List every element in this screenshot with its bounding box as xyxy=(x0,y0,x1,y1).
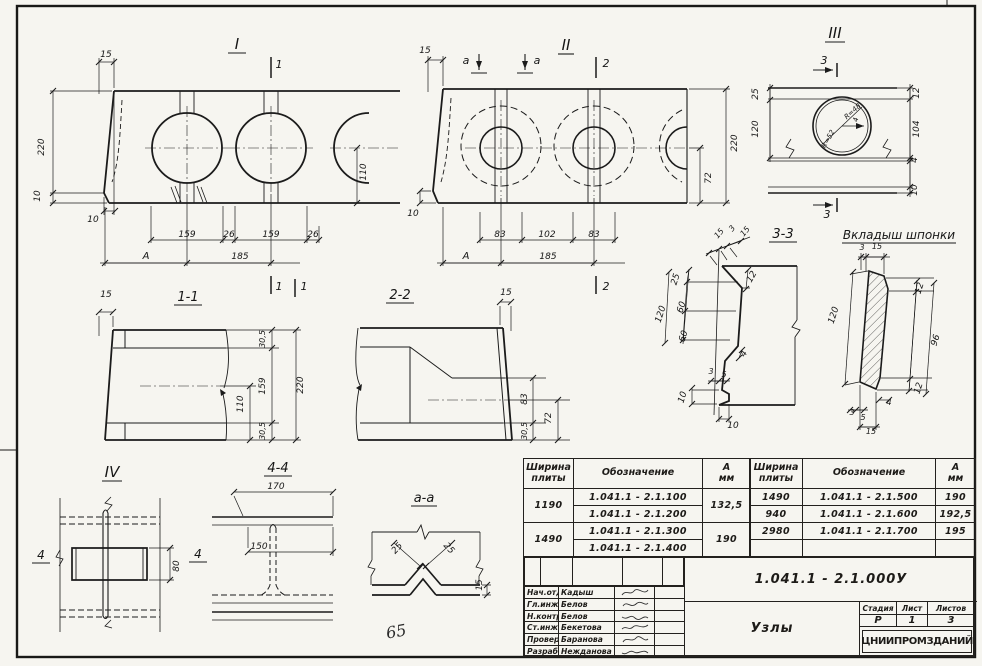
dim-label: 12 xyxy=(914,281,927,295)
table-cell: 190 xyxy=(703,523,751,557)
dim-label: 159 xyxy=(262,230,279,240)
person-role: Гл.инж.пр xyxy=(525,598,559,610)
signature-cell xyxy=(615,598,655,610)
dim-label: 104 xyxy=(912,120,922,137)
view-IV-title: IV xyxy=(105,463,121,481)
dim-label: 80 xyxy=(172,560,182,572)
axis-label: А xyxy=(462,251,470,262)
person-name: Белов xyxy=(559,610,615,622)
table-cell: 940 xyxy=(750,506,803,523)
cut-mark-label: 1 xyxy=(301,280,308,293)
dim-label: 110 xyxy=(359,163,369,180)
person-role: Н.контр. xyxy=(525,610,559,622)
sheet-label: Лист xyxy=(897,602,928,615)
signature-cell xyxy=(615,610,655,622)
dim-label: 30,5 xyxy=(258,422,267,440)
view-IV-dimensions xyxy=(149,548,174,580)
dim-label: 10 xyxy=(910,184,920,196)
dim-label: 150 xyxy=(250,542,267,552)
slab-table-left: Ширина плиты Обозначение А мм 1190 1.041… xyxy=(523,458,751,557)
dim-label: 25 xyxy=(441,541,456,556)
view-III-title: III xyxy=(828,24,842,42)
signature-cell xyxy=(615,586,655,598)
section-4-4-title: 4-4 xyxy=(267,461,288,476)
dim-label: 25 xyxy=(390,541,405,556)
col-header-designation: Обозначение xyxy=(803,459,936,489)
dim-label: 60 xyxy=(676,300,689,314)
document-number: 1.041.1 - 2.1.000У xyxy=(684,558,977,602)
dim-label: 15 xyxy=(100,290,112,300)
table-cell: 1.041.1 - 2.1.200 xyxy=(574,506,703,523)
table-cell: 1490 xyxy=(750,489,803,506)
section-3-3-dimensions xyxy=(665,237,750,422)
dim-label: 26 xyxy=(223,230,235,240)
dim-label: 15 xyxy=(738,225,751,239)
signature-cell xyxy=(615,633,655,645)
cut-mark-label: a xyxy=(463,54,470,67)
table-cell: 190 xyxy=(936,489,976,506)
dim-label: 3 xyxy=(708,367,713,376)
section-2-2-title: 2-2 xyxy=(389,288,410,303)
cut-mark-label: 3 xyxy=(824,208,831,221)
dim-label: 3 xyxy=(859,243,864,252)
dim-label: R=52 xyxy=(820,128,837,149)
person-name: Бекетова xyxy=(559,621,615,633)
date-cell xyxy=(655,645,684,657)
table-cell xyxy=(803,540,936,557)
dim-label: 185 xyxy=(539,252,556,262)
person-role: Разраб. xyxy=(525,645,559,657)
dim-label: 4 xyxy=(852,117,861,123)
dim-label: 26 xyxy=(307,230,319,240)
insert-key-title: Вкладыш шпонки xyxy=(843,228,955,242)
dim-label: 25 xyxy=(751,88,761,100)
signature-cell xyxy=(615,621,655,633)
view-III-plan xyxy=(768,63,913,212)
table-cell xyxy=(936,540,976,557)
dim-label: 10 xyxy=(407,209,419,219)
dim-label: 220 xyxy=(296,376,306,393)
dim-label: 10 xyxy=(87,215,99,225)
person-name: Баранова xyxy=(559,633,615,645)
view-I-title: I xyxy=(235,35,240,53)
col-header-a: А мм xyxy=(703,459,751,489)
dim-label: 15 xyxy=(712,227,725,241)
cut-mark-label: 3 xyxy=(821,54,828,67)
date-cell xyxy=(655,610,684,622)
date-cell xyxy=(655,586,684,598)
table-cell: 1490 xyxy=(524,523,574,557)
stage-value: Р xyxy=(860,615,897,627)
stage-label: Стадия xyxy=(860,602,897,615)
person-role: Нач.отд. xyxy=(525,586,559,598)
cut-mark-label: 1 xyxy=(276,58,283,71)
dim-label: 120 xyxy=(751,120,761,137)
person-name: Белов xyxy=(559,598,615,610)
table-cell: 1.041.1 - 2.1.600 xyxy=(803,506,936,523)
view-II-title: II xyxy=(562,36,571,54)
dim-label: 10 xyxy=(727,421,739,431)
date-cell xyxy=(655,598,684,610)
view-II-dimensions xyxy=(420,56,730,266)
date-cell xyxy=(655,621,684,633)
dim-label: 5 xyxy=(860,413,865,422)
dim-label: 15 xyxy=(475,579,485,591)
organization-name: ЦНИИПРОМЗДАНИЙ xyxy=(862,630,972,653)
dim-label: 10 xyxy=(33,190,43,202)
table-cell: 1.041.1 - 2.1.500 xyxy=(803,489,936,506)
dim-label: 10 xyxy=(677,390,690,404)
dim-label: 15 xyxy=(872,242,882,251)
table-cell: 1.041.1 - 2.1.400 xyxy=(574,540,703,557)
dim-label: 220 xyxy=(730,134,740,151)
table-cell: 2980 xyxy=(750,523,803,540)
dim-label: 30,5 xyxy=(258,330,267,348)
cut-mark-label: 2 xyxy=(603,280,610,293)
dim-label: 159 xyxy=(258,377,268,394)
dim-label: 170 xyxy=(267,482,284,492)
col-header-designation: Обозначение xyxy=(574,459,703,489)
view-I-slab-elevation xyxy=(50,57,400,294)
dim-label: 72 xyxy=(704,172,714,184)
dim-label: 96 xyxy=(930,333,943,347)
person-role: Провер. xyxy=(525,633,559,645)
person-role: Ст.инж. xyxy=(525,621,559,633)
dim-label: 4 xyxy=(739,349,751,359)
person-name: Кадыш xyxy=(559,586,615,598)
dim-label: 30,5 xyxy=(520,422,529,440)
dim-label: 83 xyxy=(588,230,600,240)
dim-label: 83 xyxy=(494,230,506,240)
section-1-1 xyxy=(99,279,301,440)
table-cell: 132,5 xyxy=(703,489,751,523)
dim-label: 110 xyxy=(236,395,246,412)
dim-label: 25 xyxy=(670,272,683,286)
dim-label: 102 xyxy=(538,230,555,240)
dim-label: 185 xyxy=(231,252,248,262)
stage-sheet-box: Стадия Лист Листов Р 1 3 ЦНИИПРОМЗДАНИЙ xyxy=(859,602,973,655)
dim-label: 159 xyxy=(178,230,195,240)
col-header-width: Ширина плиты xyxy=(750,459,803,489)
section-1-1-dimensions xyxy=(99,312,301,440)
dim-label: 3 xyxy=(849,408,854,417)
dim-label: 4 xyxy=(910,157,920,163)
section-4-4-dimensions xyxy=(234,492,333,556)
dim-label: 12 xyxy=(745,269,760,284)
dim-label: 220 xyxy=(37,138,47,155)
dim-label: 12 xyxy=(913,381,926,395)
dim-label: 3 xyxy=(727,224,737,234)
drawing-sheet: I111522010101592615926А185110IIaa2215108… xyxy=(0,0,982,666)
dim-label: 12 xyxy=(912,87,922,99)
table-cell xyxy=(750,540,803,557)
cut-mark-label: 4 xyxy=(37,548,45,562)
signature-scribble xyxy=(620,647,650,656)
section-3-3-title: 3-3 xyxy=(772,227,793,242)
personnel-grid: Нач.отд. Кадыш Гл.инж.пр Белов Н.контр. … xyxy=(525,586,684,657)
date-cell xyxy=(655,633,684,645)
signature-scribble xyxy=(620,612,650,621)
table-cell: 1190 xyxy=(524,489,574,523)
dim-label: 60 xyxy=(678,329,691,343)
slab-table-right: Ширина плиты Обозначение А мм 1490 1.041… xyxy=(749,458,976,557)
handwritten-sheet-mark: 65 xyxy=(385,620,408,642)
col-header-a: А мм xyxy=(936,459,976,489)
table-cell: 1.041.1 - 2.1.300 xyxy=(574,523,703,540)
col-header-width: Ширина плиты xyxy=(524,459,574,489)
table-cell: 195 xyxy=(936,523,976,540)
title-block: Нач.отд. Кадыш Гл.инж.пр Белов Н.контр. … xyxy=(523,556,975,657)
cut-mark-label: 1 xyxy=(276,280,283,293)
section-a-a xyxy=(368,525,491,595)
table-cell: 1.041.1 - 2.1.700 xyxy=(803,523,936,540)
dim-label: 15 xyxy=(500,288,512,298)
dim-label: 72 xyxy=(544,412,554,424)
dim-label: 4 xyxy=(886,398,891,407)
section-1-1-title: 1-1 xyxy=(177,290,198,305)
cut-mark-label: a xyxy=(534,54,541,67)
signature-scribble xyxy=(620,623,650,632)
dim-label: 15 xyxy=(866,427,876,436)
dim-label: 15 xyxy=(100,50,112,60)
sheet-count: 3 xyxy=(928,615,974,627)
drawing-title: Узлы xyxy=(684,602,859,655)
signature-cell xyxy=(615,645,655,657)
signature-scribble xyxy=(620,600,650,609)
section-2-2 xyxy=(356,302,570,440)
dim-label: 120 xyxy=(827,305,842,325)
table-cell: 192,5 xyxy=(936,506,976,523)
revision-strip xyxy=(525,558,684,586)
sheets-label: Листов xyxy=(928,602,974,615)
signature-scribble xyxy=(620,635,650,644)
table-cell: 1.041.1 - 2.1.100 xyxy=(574,489,703,506)
section-a-a-title: а-а xyxy=(414,491,435,506)
axis-label: А xyxy=(142,251,150,262)
sheet-number: 1 xyxy=(897,615,928,627)
cut-mark-label: 2 xyxy=(603,57,610,70)
view-III-dimensions xyxy=(770,84,913,197)
section-a-view-markers xyxy=(471,54,533,73)
dim-label: 5 xyxy=(721,370,726,379)
dim-label: 83 xyxy=(520,393,530,405)
view-IV-node xyxy=(56,497,174,634)
person-name: Нежданова xyxy=(559,645,615,657)
signature-scribble xyxy=(620,588,650,597)
section-4-4 xyxy=(212,492,333,620)
cut-mark-label: 4 xyxy=(194,547,202,561)
dim-label: 15 xyxy=(419,46,431,56)
